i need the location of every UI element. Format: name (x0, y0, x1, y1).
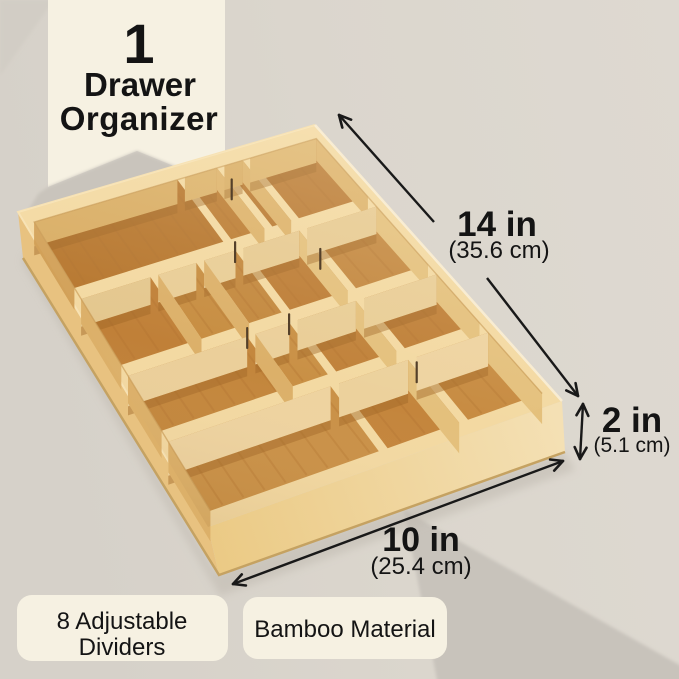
svg-text:Drawer: Drawer (84, 66, 196, 103)
svg-text:Dividers: Dividers (79, 634, 166, 661)
svg-text:Bamboo Material: Bamboo Material (254, 616, 435, 643)
svg-text:(5.1 cm): (5.1 cm) (593, 434, 670, 457)
svg-text:8 Adjustable: 8 Adjustable (57, 608, 188, 635)
svg-text:Organizer: Organizer (60, 100, 219, 137)
svg-text:(35.6 cm): (35.6 cm) (448, 237, 549, 264)
svg-text:(25.4 cm): (25.4 cm) (370, 553, 471, 580)
